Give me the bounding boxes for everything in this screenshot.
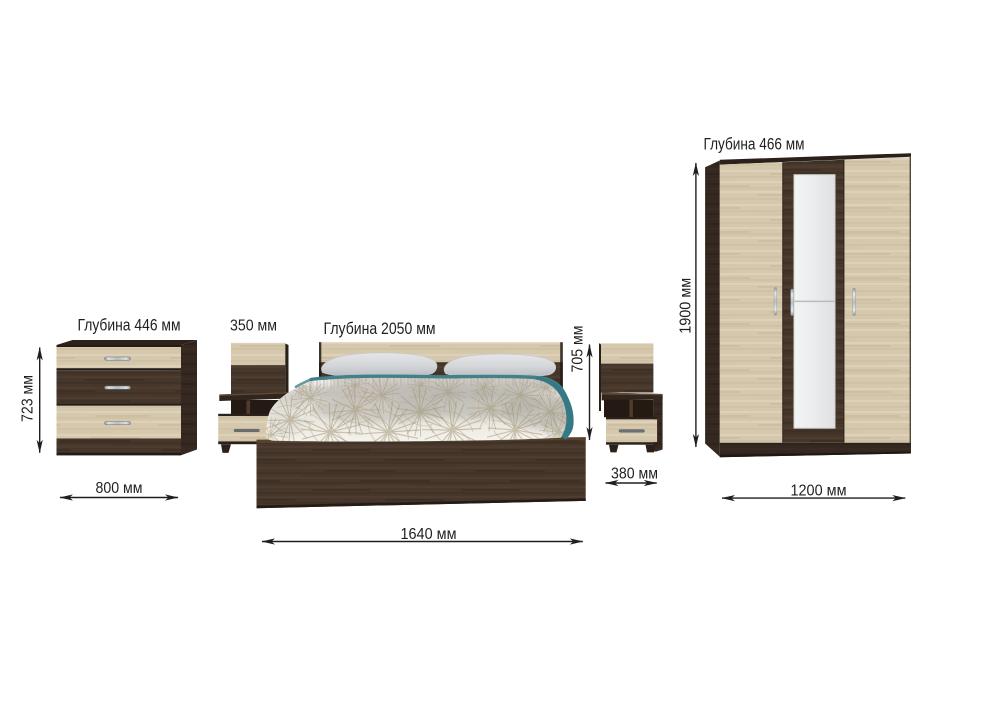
svg-text:1900 мм: 1900 мм: [678, 278, 695, 334]
svg-text:Глубина 446 мм: Глубина 446 мм: [78, 316, 181, 335]
svg-text:705 мм: 705 мм: [570, 326, 587, 373]
svg-text:380 мм: 380 мм: [611, 466, 658, 483]
svg-text:1640 мм: 1640 мм: [401, 526, 457, 543]
svg-text:723 мм: 723 мм: [20, 375, 37, 422]
svg-text:Глубина 2050 мм: Глубина 2050 мм: [324, 319, 436, 338]
svg-text:800 мм: 800 мм: [96, 480, 143, 497]
svg-text:350 мм: 350 мм: [230, 318, 277, 335]
svg-text:1200 мм: 1200 мм: [791, 483, 847, 500]
svg-text:Глубина 466 мм: Глубина 466 мм: [704, 135, 805, 154]
